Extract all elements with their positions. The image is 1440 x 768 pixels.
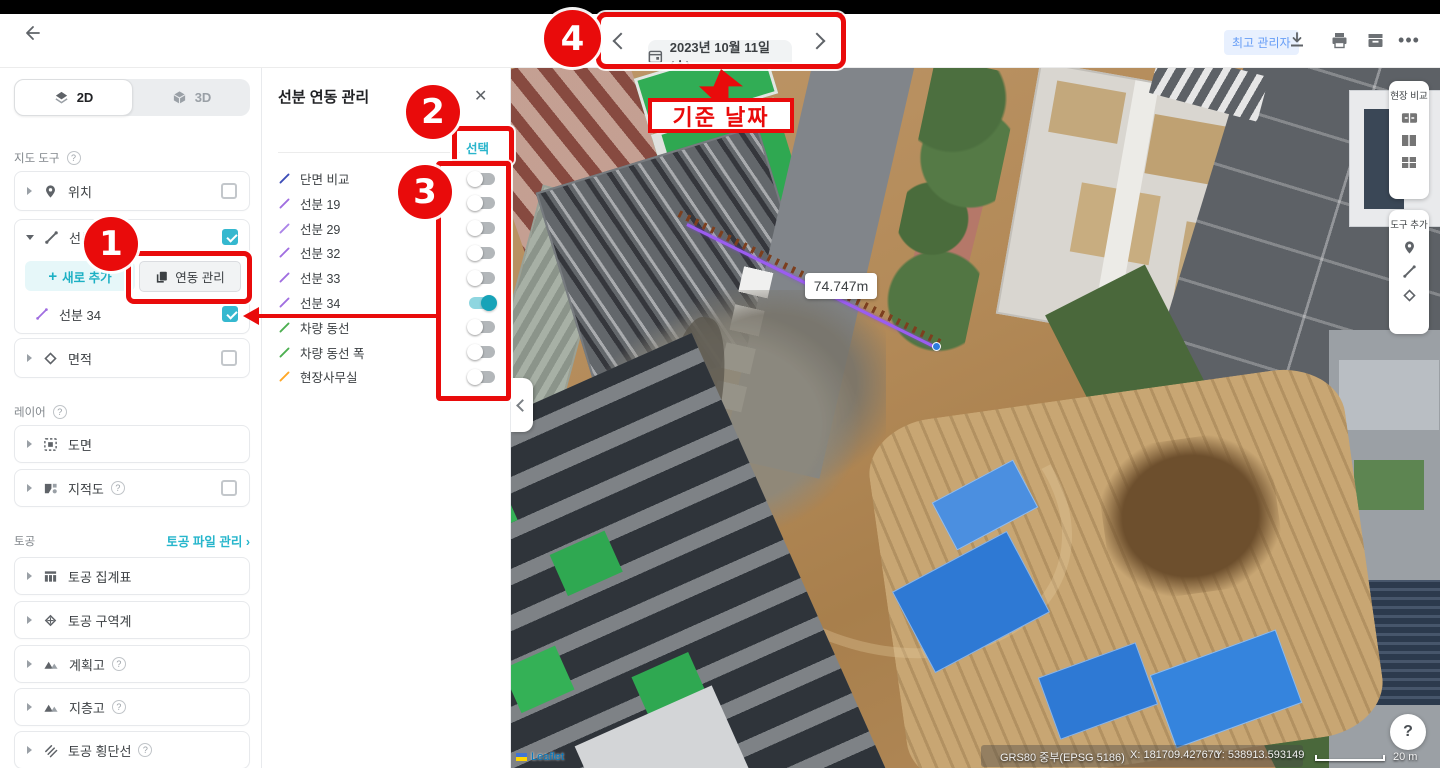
scale-label: 20 m bbox=[1393, 751, 1417, 763]
strata-level-label: 지층고 bbox=[69, 698, 105, 717]
segment-row-toggle[interactable] bbox=[469, 371, 495, 383]
earthwork-files-label: 토공 파일 관리 bbox=[166, 535, 242, 549]
segment-color-line-icon bbox=[278, 197, 291, 210]
earthwork-files-link[interactable]: 토공 파일 관리 › bbox=[166, 531, 250, 550]
segment-color-line-icon bbox=[278, 346, 291, 359]
segment-34-line-icon bbox=[35, 307, 49, 321]
segment-34-row[interactable]: 선분 34 bbox=[14, 298, 250, 330]
copy-pages-icon bbox=[155, 270, 169, 284]
top-toolbar: 2023년 10월 11일 (수) 최고 관리자 ••• bbox=[0, 14, 1440, 68]
segment-list-row[interactable]: 차량 동선 폭 bbox=[278, 340, 495, 365]
caret-right-icon[interactable] bbox=[27, 616, 32, 624]
segment-color-line-icon bbox=[278, 246, 291, 259]
segment-row-toggle[interactable] bbox=[469, 247, 495, 259]
download-icon bbox=[1288, 31, 1306, 49]
tool-card-location[interactable]: 위치 bbox=[14, 171, 250, 211]
blueprint-icon bbox=[43, 437, 58, 452]
toggle-knob bbox=[467, 245, 483, 261]
flag-icon bbox=[516, 753, 527, 761]
mode-2d-label: 2D bbox=[77, 90, 94, 105]
caret-right-icon[interactable] bbox=[27, 660, 32, 668]
section-map-tools-label: 지도 도구 bbox=[14, 150, 60, 166]
cadastral-map-icon bbox=[43, 481, 58, 496]
help-icon[interactable]: ? bbox=[112, 700, 126, 714]
caret-right-icon[interactable] bbox=[27, 187, 32, 195]
toggle-knob bbox=[467, 171, 483, 187]
segment-list-row[interactable]: 선분 19 bbox=[278, 191, 495, 216]
caret-right-icon[interactable] bbox=[27, 440, 32, 448]
mode-3d-label: 3D bbox=[195, 90, 212, 105]
measurement-endpoint[interactable] bbox=[932, 342, 941, 351]
zone-diamond-icon bbox=[43, 613, 58, 628]
section-earthwork: 토공 토공 파일 관리 › bbox=[14, 531, 250, 550]
tool-segment-label: 선분 bbox=[69, 228, 93, 247]
date-prev-button[interactable] bbox=[606, 26, 636, 56]
two-pane-icon[interactable] bbox=[1401, 134, 1417, 147]
map-green-roof bbox=[511, 483, 518, 542]
compare-panel-title: 현장 비교 bbox=[1390, 88, 1428, 102]
divider bbox=[278, 152, 460, 153]
coordinate-x: X: 181709.427670 bbox=[1130, 749, 1220, 761]
help-question-mark: ? bbox=[1403, 723, 1413, 741]
section-layers-label: 레이어 bbox=[14, 404, 46, 420]
caret-right-icon[interactable] bbox=[27, 746, 32, 754]
segment-row-toggle[interactable] bbox=[469, 272, 495, 284]
add-area-icon[interactable] bbox=[1402, 288, 1417, 303]
measurement-label: 74.747m bbox=[805, 273, 877, 299]
caret-down-icon[interactable] bbox=[26, 235, 34, 240]
map-viewport[interactable]: 74.747m 현장 비교 도구 추가 ? GRS80 중부(EPSG 5186… bbox=[511, 68, 1440, 768]
crs-label: GRS80 중부(EPSG 5186) bbox=[1000, 749, 1125, 765]
earthwork-card-strata-level[interactable]: 지층고 ? bbox=[14, 688, 250, 726]
print-button[interactable] bbox=[1326, 27, 1352, 53]
mode-2d-button[interactable]: 2D bbox=[14, 79, 133, 116]
segment-row-label: 선분 33 bbox=[300, 268, 340, 287]
mountains-icon bbox=[43, 700, 59, 715]
tool-location-label: 위치 bbox=[68, 182, 92, 201]
add-segment-icon[interactable] bbox=[1402, 264, 1417, 279]
section-map-tools: 지도 도구? bbox=[14, 150, 81, 166]
ellipsis-icon: ••• bbox=[1398, 30, 1420, 51]
view-mode-toggle: 2D 3D bbox=[14, 79, 250, 116]
segment-row-label: 차량 동선 bbox=[300, 318, 349, 337]
close-icon[interactable]: ✕ bbox=[474, 86, 487, 106]
segment-row-label: 선분 19 bbox=[300, 194, 340, 213]
panel-title: 선분 연동 관리 bbox=[278, 86, 369, 107]
four-pane-icon[interactable] bbox=[1401, 156, 1417, 169]
earthwork-card-cross-section[interactable]: 토공 횡단선 ? bbox=[14, 731, 250, 768]
panel-collapse-tab[interactable] bbox=[511, 378, 533, 432]
segment-list-row[interactable]: 차량 동선 bbox=[278, 315, 495, 340]
segment-row-toggle[interactable] bbox=[469, 346, 495, 358]
table-icon bbox=[43, 569, 58, 584]
top-black-strip bbox=[0, 0, 1440, 14]
back-button[interactable] bbox=[18, 19, 46, 47]
segment-list-row[interactable]: 현장사무실 bbox=[278, 364, 495, 389]
area-checkbox[interactable] bbox=[221, 350, 237, 366]
segment-checkbox[interactable] bbox=[222, 229, 238, 245]
chevron-right-icon bbox=[809, 33, 826, 50]
segment-row-label: 단면 비교 bbox=[300, 169, 349, 188]
attribution-label: Leaflet bbox=[531, 751, 564, 763]
segment-color-line-icon bbox=[278, 172, 291, 185]
download-button[interactable] bbox=[1284, 27, 1310, 53]
layer-card-cadastral[interactable]: 지적도 ? bbox=[14, 469, 250, 507]
segment-list-row[interactable]: 선분 29 bbox=[278, 216, 495, 241]
segment-header-row[interactable]: 선분 bbox=[14, 219, 250, 255]
add-new-button[interactable]: + 새로 추가 bbox=[25, 261, 135, 291]
printer-icon bbox=[1330, 31, 1349, 50]
segment-color-line-icon bbox=[278, 370, 291, 383]
compare-panel: 현장 비교 bbox=[1389, 81, 1429, 199]
segment-row-label: 현장사무실 bbox=[300, 367, 358, 386]
location-checkbox[interactable] bbox=[221, 183, 237, 199]
toggle-knob bbox=[467, 270, 483, 286]
add-tools-panel-title: 도구 추가 bbox=[1390, 217, 1428, 231]
segment-row-label: 선분 29 bbox=[300, 219, 340, 238]
earthwork-summary-label: 토공 집계표 bbox=[68, 567, 131, 586]
segment-link-panel: 선분 연동 관리 ✕ 선택 단면 비교 선분 19 선분 29 선분 32 bbox=[262, 68, 511, 768]
layer-cadastral-label: 지적도 bbox=[68, 479, 104, 498]
toggle-knob bbox=[467, 369, 483, 385]
segment-row-toggle[interactable] bbox=[469, 297, 495, 309]
plan-level-label: 계획고 bbox=[69, 655, 105, 674]
toggle-knob bbox=[467, 195, 483, 211]
earthwork-card-summary[interactable]: 토공 집계표 bbox=[14, 557, 250, 595]
map-green-roof bbox=[511, 646, 575, 713]
help-icon[interactable]: ? bbox=[67, 151, 81, 165]
mode-3d-button[interactable]: 3D bbox=[133, 79, 250, 116]
help-icon[interactable]: ? bbox=[138, 743, 152, 757]
tool-area-label: 면적 bbox=[68, 349, 92, 368]
plus-icon: + bbox=[48, 268, 57, 285]
segment-color-line-icon bbox=[278, 222, 291, 235]
archive-button[interactable] bbox=[1362, 27, 1388, 53]
segment-34-checkbox[interactable] bbox=[222, 306, 238, 322]
toggle-knob bbox=[467, 220, 483, 236]
segment-34-label: 선분 34 bbox=[59, 305, 101, 324]
toggle-knob bbox=[481, 295, 497, 311]
cadastral-checkbox[interactable] bbox=[221, 480, 237, 496]
map-green-roof bbox=[550, 531, 623, 597]
left-sidebar: 2D 3D 지도 도구? 위치 선분 + 새로 추가 bbox=[0, 68, 262, 768]
mountains-icon bbox=[43, 657, 59, 672]
cross-section-lines-icon bbox=[43, 743, 58, 758]
more-menu-button[interactable]: ••• bbox=[1396, 27, 1422, 53]
earthwork-card-plan-level[interactable]: 계획고 ? bbox=[14, 645, 250, 683]
calendar-icon bbox=[648, 49, 663, 64]
segment-list-row[interactable]: 선분 34 bbox=[278, 290, 495, 315]
map-dirt-mound bbox=[1093, 427, 1288, 605]
caret-right-icon[interactable] bbox=[27, 484, 32, 492]
help-icon[interactable]: ? bbox=[53, 405, 67, 419]
segment-row-label: 선분 34 bbox=[300, 293, 340, 312]
caret-right-icon[interactable] bbox=[27, 354, 32, 362]
segment-list-row[interactable]: 선분 32 bbox=[278, 240, 495, 265]
segment-list-row[interactable]: 단면 비교 bbox=[278, 166, 495, 191]
select-button[interactable]: 선택 bbox=[466, 138, 489, 157]
segment-color-line-icon bbox=[278, 271, 291, 284]
segment-row-label: 선분 32 bbox=[300, 243, 340, 262]
segment-row-label: 차량 동선 폭 bbox=[300, 343, 364, 362]
tool-card-area[interactable]: 면적 bbox=[14, 338, 250, 378]
add-location-icon[interactable] bbox=[1402, 240, 1417, 255]
earthwork-card-boundary[interactable]: 토공 구역계 bbox=[14, 601, 250, 639]
layers-icon bbox=[54, 90, 69, 105]
help-button[interactable]: ? bbox=[1390, 714, 1426, 750]
layer-card-drawing[interactable]: 도면 bbox=[14, 425, 250, 463]
layer-drawing-label: 도면 bbox=[68, 435, 92, 454]
toggle-knob bbox=[467, 319, 483, 335]
coordinate-y: Y: 538913.593149 bbox=[1215, 749, 1304, 761]
segment-row-toggle[interactable] bbox=[469, 197, 495, 209]
segment-row-toggle[interactable] bbox=[469, 173, 495, 185]
caret-right-icon[interactable] bbox=[27, 572, 32, 580]
map-attribution[interactable]: Leaflet bbox=[516, 751, 564, 763]
help-icon[interactable]: ? bbox=[111, 481, 125, 495]
chevron-left-icon bbox=[516, 399, 529, 412]
back-arrow-icon bbox=[22, 23, 42, 43]
archive-icon bbox=[1366, 31, 1385, 50]
location-pin-icon bbox=[43, 184, 58, 199]
map-roof bbox=[1339, 360, 1439, 430]
segment-row-toggle[interactable] bbox=[469, 321, 495, 333]
add-new-label: 새로 추가 bbox=[62, 267, 111, 286]
section-layers: 레이어? bbox=[14, 404, 67, 420]
segment-line-icon bbox=[44, 230, 59, 245]
map-car-row bbox=[511, 463, 612, 768]
cube-icon bbox=[172, 90, 187, 105]
measurement-value: 74.747m bbox=[814, 278, 868, 294]
map-green-roof bbox=[1354, 460, 1424, 510]
date-next-button[interactable] bbox=[802, 26, 832, 56]
section-earthwork-label: 토공 bbox=[14, 533, 35, 549]
link-manage-button[interactable]: 연동 관리 bbox=[139, 261, 241, 292]
swipe-compare-icon[interactable] bbox=[1401, 111, 1418, 125]
toggle-knob bbox=[467, 344, 483, 360]
segment-color-line-icon bbox=[278, 321, 291, 334]
segment-row-toggle[interactable] bbox=[469, 222, 495, 234]
map-roof-garden bbox=[1048, 81, 1126, 144]
segment-color-line-icon bbox=[278, 296, 291, 309]
chevron-left-icon bbox=[613, 33, 630, 50]
earthwork-boundary-label: 토공 구역계 bbox=[68, 611, 131, 630]
caret-right-icon[interactable] bbox=[27, 703, 32, 711]
scale-bar bbox=[1315, 755, 1385, 761]
area-diamond-icon bbox=[43, 351, 58, 366]
app-window: 2023년 10월 11일 (수) 최고 관리자 ••• 2D 3D 지 bbox=[0, 0, 1440, 768]
link-manage-label: 연동 관리 bbox=[175, 267, 224, 286]
cross-section-label: 토공 횡단선 bbox=[68, 741, 131, 760]
help-icon[interactable]: ? bbox=[112, 657, 126, 671]
add-tools-panel: 도구 추가 bbox=[1389, 210, 1429, 334]
segment-list-row[interactable]: 선분 33 bbox=[278, 265, 495, 290]
